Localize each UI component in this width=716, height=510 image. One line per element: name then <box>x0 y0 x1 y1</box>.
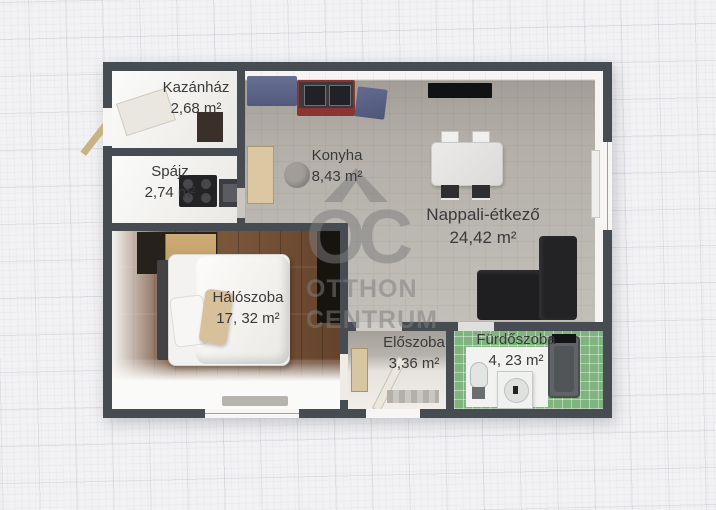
microwave-door <box>223 184 237 202</box>
dining-chair-bottom-right <box>472 185 490 200</box>
window-bottom <box>205 409 299 418</box>
room-label-bathroom: Fürdőszoba 4, 23 m² <box>476 330 555 371</box>
kitchen-corner-cabinet <box>354 86 387 119</box>
bathtub-basin <box>554 346 574 392</box>
dining-chair-bottom-left <box>441 185 459 200</box>
door-opening-bedroom <box>340 354 348 400</box>
room-label-kitchen: Konyha 8,43 m² <box>312 146 363 187</box>
kitchen-tall-cabinet <box>247 146 274 204</box>
room-area: 2,68 m² <box>163 99 230 120</box>
room-name: Fürdőszoba <box>476 330 555 351</box>
wall-top <box>103 62 612 71</box>
entry-door-opening <box>366 409 420 418</box>
window-sill-bench <box>222 396 288 406</box>
dining-table <box>431 142 503 186</box>
room-label-pantry: Spájz 2,74 m² <box>145 162 196 203</box>
doormat <box>387 390 439 403</box>
door-opening-pantry <box>237 188 245 218</box>
tv-screen <box>428 83 492 98</box>
wall-bottom <box>103 409 612 418</box>
wall-hall-bathroom <box>446 331 454 409</box>
watermark-oc: OC <box>306 202 406 274</box>
room-name: Nappali-étkező <box>426 203 539 226</box>
door-opening-boiler <box>103 108 112 146</box>
window-glass-line <box>205 413 299 414</box>
burner-icon <box>201 193 211 203</box>
room-label-living: Nappali-étkező 24,42 m² <box>426 203 539 250</box>
room-area: 2,74 m² <box>145 183 196 204</box>
room-name: Előszoba <box>383 333 445 354</box>
sink-vanity <box>497 371 533 409</box>
toilet-tank <box>472 387 485 399</box>
watermark-logo: OC OTTHON CENTRUM <box>306 168 406 335</box>
sink-basin-left <box>304 85 326 106</box>
window-glass-line <box>607 142 608 230</box>
room-area: 24,42 m² <box>426 226 539 249</box>
room-label-hallway: Előszoba 3,36 m² <box>383 333 445 374</box>
floorplan-canvas: OC OTTHON CENTRUM Kazánház 2,68 m² Spájz… <box>0 0 716 510</box>
kitchen-sink-unit <box>297 80 355 116</box>
radiator <box>591 150 600 218</box>
wall-boiler-pantry <box>112 148 237 156</box>
room-name: Konyha <box>312 146 363 167</box>
sink-basin-right <box>329 85 351 106</box>
room-label-boiler: Kazánház 2,68 m² <box>163 78 230 119</box>
sofa-chaise <box>539 236 577 320</box>
room-area: 4, 23 m² <box>476 351 555 372</box>
room-label-bedroom: Hálószoba 17, 32 m² <box>213 288 284 329</box>
room-area: 3,36 m² <box>383 354 445 375</box>
burner-icon <box>201 179 211 189</box>
wall-right <box>603 62 612 418</box>
room-name: Hálószoba <box>213 288 284 309</box>
room-name: Spájz <box>145 162 196 183</box>
hallway-cabinet <box>351 348 368 392</box>
faucet-icon <box>513 386 518 394</box>
kitchen-cabinet-blue <box>247 76 297 106</box>
room-area: 8,43 m² <box>312 167 363 188</box>
room-area: 17, 32 m² <box>213 309 284 330</box>
window-right <box>603 142 612 230</box>
room-name: Kazánház <box>163 78 230 99</box>
watermark-centrum: CENTRUM <box>306 305 406 336</box>
watermark-otthon: OTTHON <box>306 274 406 305</box>
